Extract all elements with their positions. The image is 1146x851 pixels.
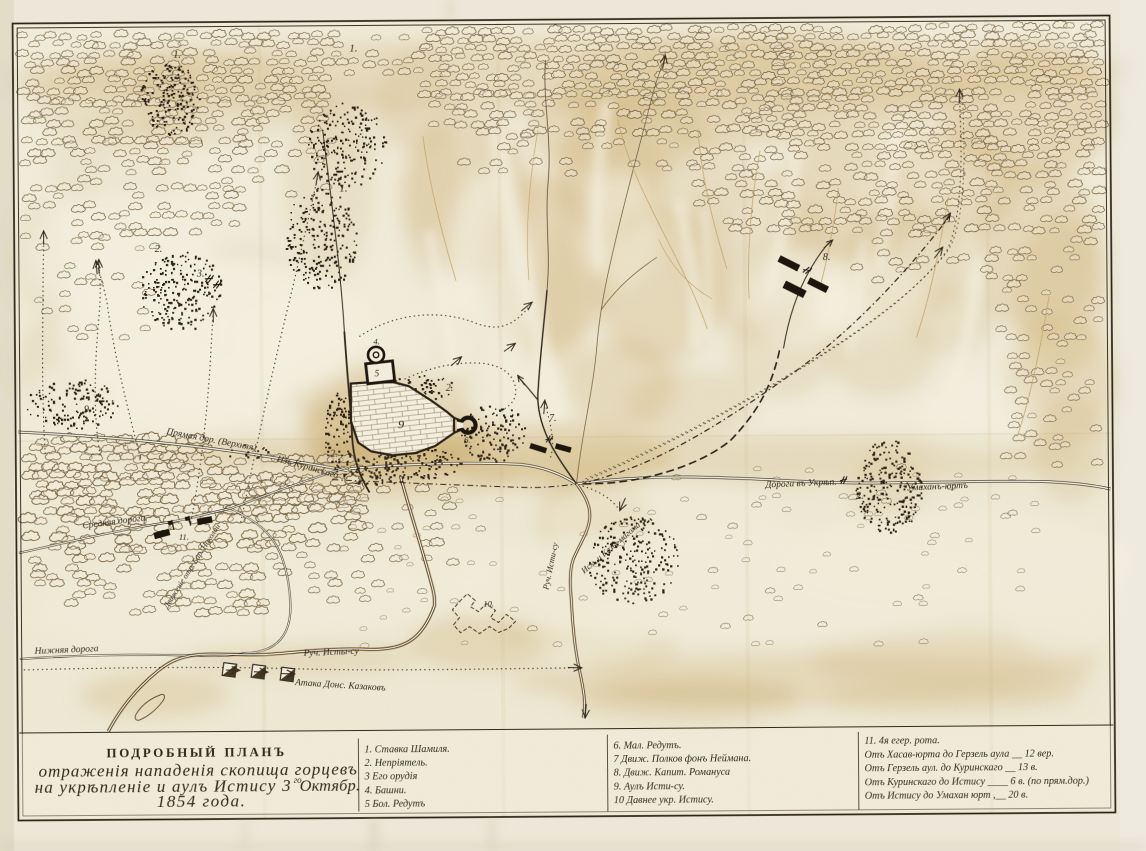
- svg-text:8. Движ. Капит. Романуса: 8. Движ. Капит. Романуса: [614, 767, 731, 779]
- svg-text:7.: 7.: [549, 413, 557, 424]
- svg-text:9. Аулъ Исти-су.: 9. Аулъ Исти-су.: [614, 781, 685, 793]
- svg-text:1. Ставка Шамиля.: 1. Ставка Шамиля.: [364, 744, 449, 756]
- svg-text:4. Башни.: 4. Башни.: [365, 785, 407, 796]
- svg-text:9.: 9.: [84, 404, 92, 415]
- svg-text:ПОДРОБНЫЙ: ПОДРОБНЫЙ: [106, 745, 218, 761]
- svg-text:1.: 1.: [339, 183, 347, 195]
- svg-text:Отъ Истису до Умахан юрт ,__: Отъ Истису до Умахан юрт ,__ 20 в.: [865, 790, 1028, 802]
- svg-text:9: 9: [398, 417, 404, 431]
- svg-text:2.: 2.: [856, 490, 864, 502]
- svg-text:5: 5: [375, 368, 380, 378]
- svg-text:Октябр.: Октябр.: [300, 776, 361, 795]
- svg-text:3.: 3.: [196, 269, 205, 280]
- svg-text:11. 4я егер. рота.: 11. 4я егер. рота.: [864, 735, 940, 747]
- svg-text:ПЛАНЪ: ПЛАНЪ: [224, 744, 286, 759]
- svg-text:4.: 4.: [373, 336, 379, 346]
- svg-text:6. Мал. Редутъ.: 6. Мал. Редутъ.: [613, 740, 681, 751]
- svg-text:Отъ Куринскаго до Истису ____: Отъ Куринскаго до Истису ____ 6 в. (по п…: [865, 776, 1090, 789]
- svg-text:Отъ Хасав-юрта до Герзель аула: Отъ Хасав-юрта до Герзель аула __ 12 вер…: [864, 748, 1053, 760]
- svg-text:8.: 8.: [823, 252, 831, 263]
- svg-text:5 Бол. Редутъ: 5 Бол. Редутъ: [365, 798, 425, 809]
- svg-text:10.: 10.: [483, 599, 494, 609]
- svg-text:7 Движ. Полков фонъ Неймана.: 7 Движ. Полков фонъ Неймана.: [613, 753, 751, 765]
- svg-text:2.: 2.: [330, 449, 338, 460]
- svg-text:10 Давнее укр. Истису.: 10 Давнее укр. Истису.: [614, 794, 714, 806]
- svg-text:1.: 1.: [349, 43, 357, 55]
- svg-text:1854 года.: 1854 года.: [157, 791, 247, 811]
- svg-text:3 Его орудія: 3 Его орудія: [364, 771, 418, 782]
- svg-text:6.: 6.: [464, 435, 470, 445]
- svg-text:1.: 1.: [173, 50, 181, 61]
- svg-text:2. Непріятель.: 2. Непріятель.: [364, 758, 427, 769]
- svg-text:2.: 2.: [155, 244, 163, 255]
- svg-text:11.: 11.: [179, 532, 189, 542]
- svg-text:Отъ Герзель аул. до Куринскаго: Отъ Герзель аул. до Куринскаго __ 13 в.: [865, 762, 1038, 774]
- svg-text:2.: 2.: [446, 383, 454, 394]
